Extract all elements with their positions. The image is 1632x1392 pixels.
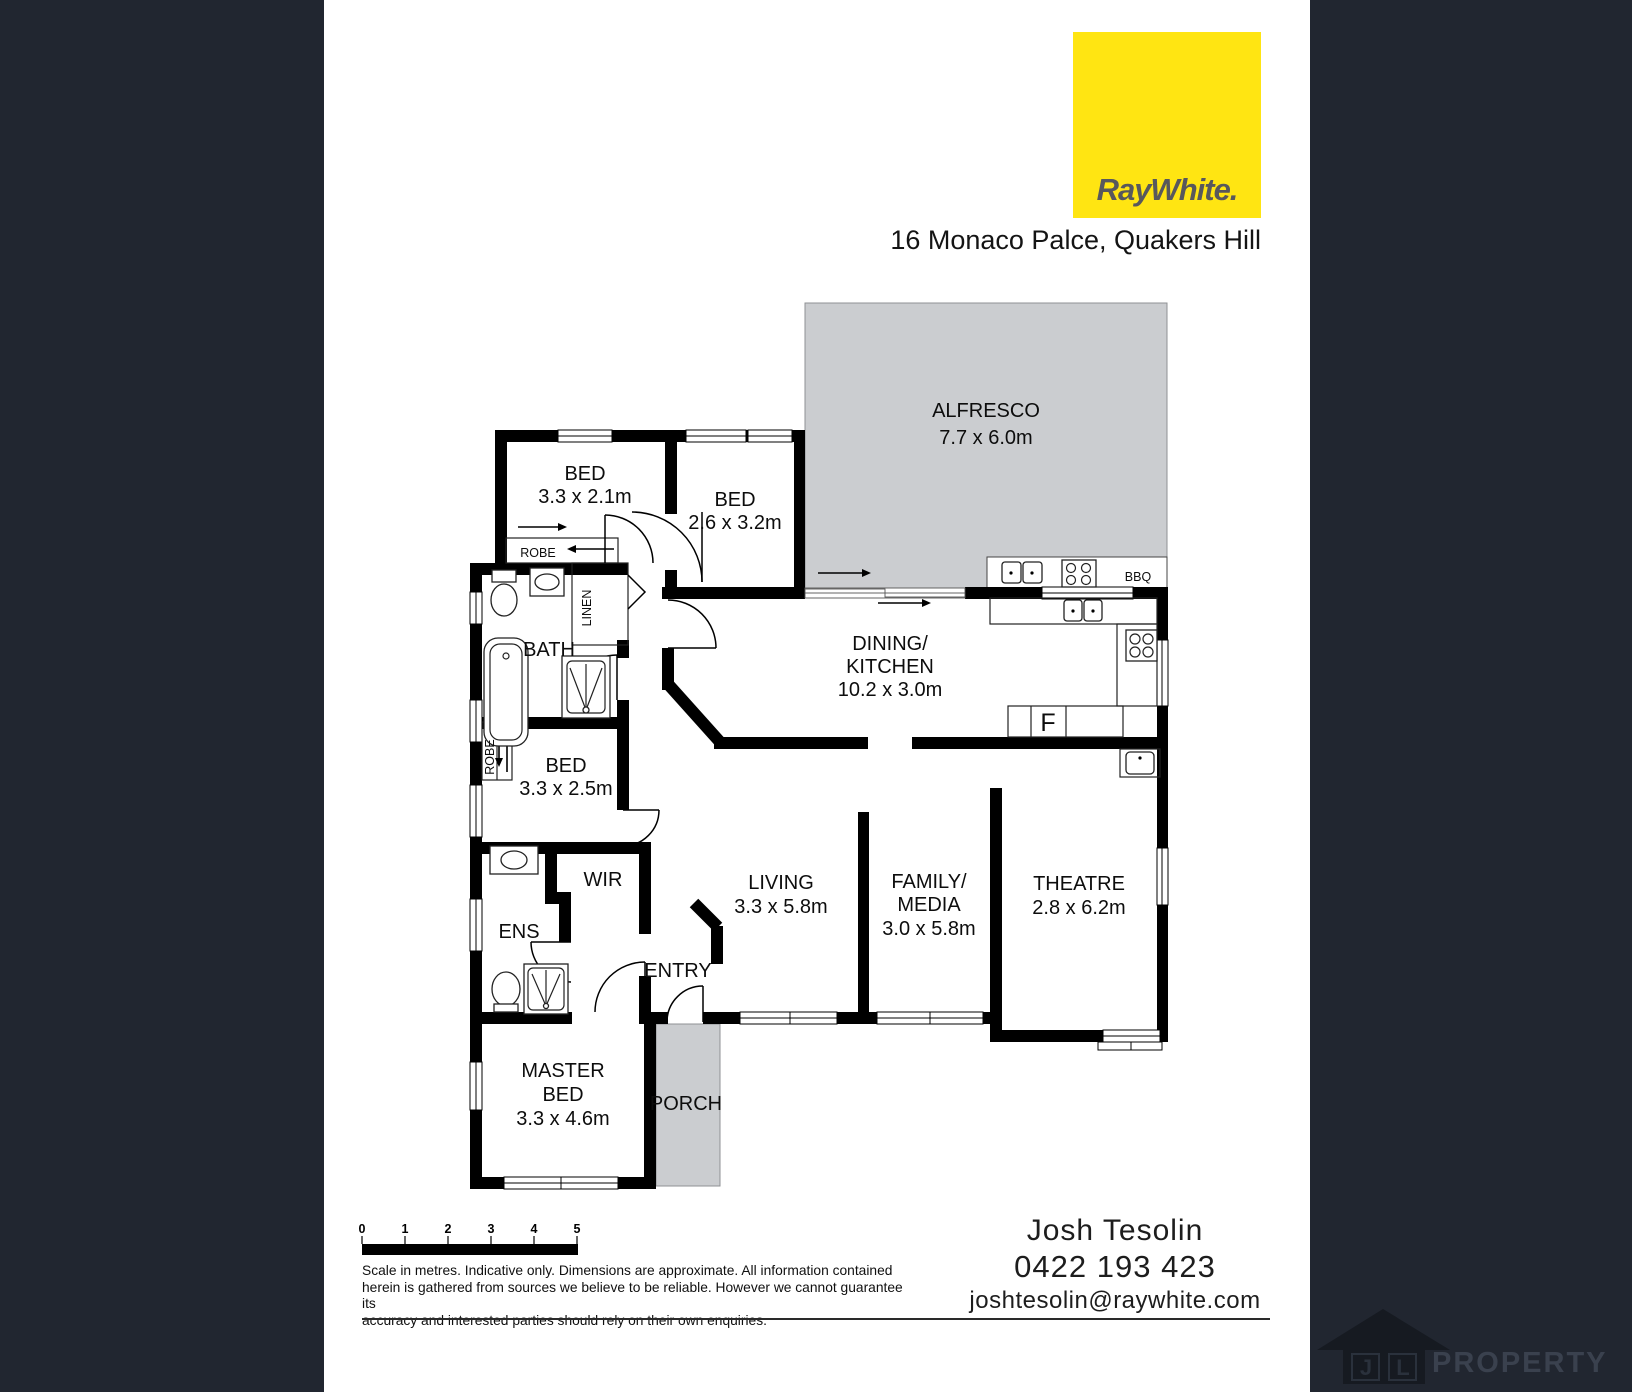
label-robe-top: ROBE xyxy=(520,546,555,560)
label-entry: ENTRY xyxy=(644,960,711,982)
label-bed1-dims: 3.3 x 2.1m xyxy=(538,486,631,508)
cooktop-icon xyxy=(1126,630,1157,661)
label-theatre: THEATRE xyxy=(1033,873,1125,895)
window xyxy=(686,430,746,442)
agent-phone: 0422 193 423 xyxy=(920,1249,1310,1285)
scale-tick-4: 4 xyxy=(531,1222,538,1236)
agent-email: joshtesolin@raywhite.com xyxy=(920,1285,1310,1316)
label-bbq: BBQ xyxy=(1125,570,1152,584)
label-bed2-dims: 2.6 x 3.2m xyxy=(688,512,781,534)
label-alfresco-dims: 7.7 x 6.0m xyxy=(939,427,1032,449)
label-dining-2: KITCHEN xyxy=(846,656,934,678)
shower-icon xyxy=(562,656,610,718)
label-master-dims: 3.3 x 4.6m xyxy=(516,1108,609,1130)
scale-tick-2: 2 xyxy=(445,1222,452,1236)
label-bed2: BED xyxy=(714,489,755,511)
window xyxy=(558,430,612,442)
label-family-dims: 3.0 x 5.8m xyxy=(882,918,975,940)
house-icon xyxy=(1317,1309,1450,1350)
scale-tick-1: 1 xyxy=(402,1222,409,1236)
label-wir: WIR xyxy=(584,869,623,891)
label-alfresco: ALFRESCO xyxy=(932,400,1040,422)
label-porch: PORCH xyxy=(650,1093,722,1115)
disclaimer-line: Scale in metres. Indicative only. Dimens… xyxy=(362,1263,907,1280)
toilet-icon xyxy=(492,972,520,1006)
label-master-1: MASTER xyxy=(521,1060,604,1082)
watermark-letter-l: L xyxy=(1396,1355,1409,1380)
watermark-letter-j: J xyxy=(1360,1355,1372,1380)
scale-tick-0: 0 xyxy=(359,1222,366,1236)
label-bed3: BED xyxy=(545,755,586,777)
label-theatre-dims: 2.8 x 6.2m xyxy=(1032,897,1125,919)
window xyxy=(748,430,792,442)
window xyxy=(504,1177,618,1189)
shower-icon xyxy=(524,964,568,1014)
scale-tick-5: 5 xyxy=(574,1222,581,1236)
disclaimer-line: herein is gathered from sources we belie… xyxy=(362,1280,907,1313)
window xyxy=(470,592,482,624)
scale-tick-3: 3 xyxy=(488,1222,495,1236)
label-dining-1: DINING/ xyxy=(852,633,928,655)
label-ens: ENS xyxy=(498,921,539,943)
label-family-1: FAMILY/ xyxy=(891,871,967,893)
footer-divider xyxy=(362,1318,1270,1320)
window xyxy=(1157,640,1168,706)
agent-name: Josh Tesolin xyxy=(920,1212,1310,1249)
label-bath: BATH xyxy=(523,639,575,661)
label-linen: LINEN xyxy=(580,590,594,627)
label-family-2: MEDIA xyxy=(897,894,961,916)
linen-bifold-door xyxy=(628,575,645,609)
window xyxy=(877,1012,983,1024)
window xyxy=(470,1062,482,1110)
label-living-dims: 3.3 x 5.8m xyxy=(734,896,827,918)
label-bed1: BED xyxy=(564,463,605,485)
window xyxy=(1157,848,1168,905)
scale-bar: 0 1 2 3 4 5 xyxy=(359,1222,581,1255)
window xyxy=(740,1012,837,1024)
label-fridge: F xyxy=(1040,709,1055,737)
window xyxy=(470,899,482,951)
flyer-canvas: RayWhite. 16 Monaco Palce, Quakers Hill xyxy=(0,0,1632,1392)
window xyxy=(1042,587,1133,599)
watermark-word: PROPERTY xyxy=(1432,1347,1608,1379)
agent-contact: Josh Tesolin 0422 193 423 joshtesolin@ra… xyxy=(920,1212,1310,1316)
label-living: LIVING xyxy=(748,872,814,894)
toilet-icon xyxy=(492,570,516,582)
floor-plan: ALFRESCO 7.7 x 6.0m BED 3.3 x 2.1m BED 2… xyxy=(0,0,1632,1392)
label-master-2: BED xyxy=(542,1084,583,1106)
disclaimer-line: accuracy and interested parties should r… xyxy=(362,1313,907,1330)
window xyxy=(1103,1030,1160,1042)
label-robe-mid: ROBE xyxy=(483,739,497,774)
sliding-door xyxy=(805,588,965,598)
bay-window xyxy=(1098,1042,1162,1050)
label-dining-dims: 10.2 x 3.0m xyxy=(838,679,943,701)
jl-property-watermark: J L PROPERTY xyxy=(1317,1309,1608,1384)
window xyxy=(470,785,482,837)
window xyxy=(470,700,482,742)
label-bed3-dims: 3.3 x 2.5m xyxy=(519,778,612,800)
